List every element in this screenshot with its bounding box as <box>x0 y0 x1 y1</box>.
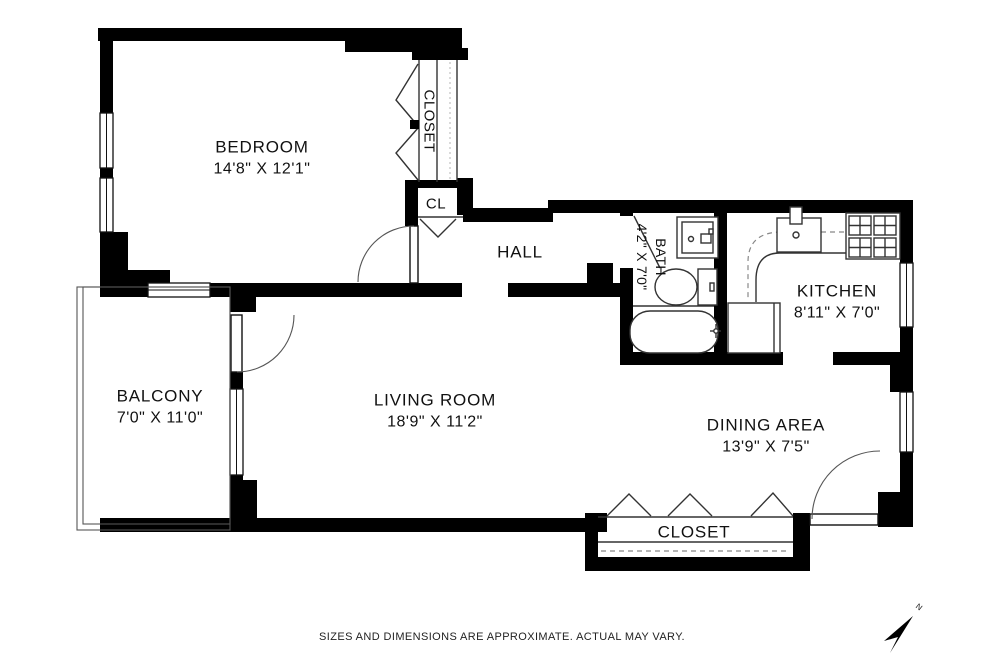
entry-door <box>810 451 880 525</box>
bifold-door <box>396 128 418 180</box>
wall <box>793 513 810 571</box>
footer-disclaimer: SIZES AND DIMENSIONS ARE APPROXIMATE. AC… <box>319 631 685 643</box>
bedroom-dims: 14'8" X 12'1" <box>214 161 311 178</box>
wall <box>620 352 783 365</box>
living-room-dims: 18'9" X 11'2" <box>387 414 483 431</box>
burner <box>874 238 896 257</box>
window <box>230 389 243 475</box>
kitchen-label: KITCHEN <box>797 282 877 301</box>
bathtub <box>630 311 721 353</box>
dining-area-dims: 13'9" X 7'5" <box>722 439 810 456</box>
wall <box>412 48 468 60</box>
bifold-door <box>420 219 456 237</box>
window <box>900 392 913 452</box>
balcony-railing <box>77 287 230 530</box>
stove <box>846 213 900 259</box>
burner <box>849 238 871 257</box>
wall <box>900 213 913 263</box>
bath-sink <box>677 217 718 258</box>
floorplan-page: BEDROOM 14'8" X 12'1" CLOSET CL HALL BAT… <box>0 0 1000 666</box>
window <box>100 178 113 232</box>
bifold-door <box>668 494 712 516</box>
wall <box>585 557 808 571</box>
living-room-label: LIVING ROOM <box>374 391 496 410</box>
hall-closet-label: CL <box>426 196 446 213</box>
wall <box>230 372 243 389</box>
wall <box>405 180 418 226</box>
doors <box>231 216 880 525</box>
bifold-door <box>396 64 418 126</box>
wall <box>230 295 256 312</box>
bedroom-closet-label: CLOSET <box>421 89 438 152</box>
burner <box>874 216 896 235</box>
north-label: N <box>914 602 924 613</box>
bifold-pivot <box>410 120 419 129</box>
window <box>900 263 913 327</box>
bath-dims: 4'2" X 7'0" <box>634 224 650 291</box>
bifold-door <box>751 493 793 516</box>
burner <box>849 216 871 235</box>
refrigerator <box>728 303 780 353</box>
dining-area-label: DINING AREA <box>707 416 825 435</box>
wall <box>878 492 913 527</box>
kitchen-fixtures <box>728 207 900 353</box>
bath-label: BATH <box>653 238 669 276</box>
walls <box>98 28 913 571</box>
bifold-door <box>607 494 651 516</box>
hall-closet <box>418 217 463 237</box>
floor-plan: BEDROOM 14'8" X 12'1" CLOSET CL HALL BAT… <box>0 0 1000 666</box>
wall <box>900 452 913 496</box>
balcony-door <box>231 315 294 372</box>
north-arrow: N <box>884 602 924 653</box>
window <box>100 113 113 168</box>
wall <box>230 480 257 523</box>
window <box>148 283 210 297</box>
wall <box>620 268 633 365</box>
wall <box>900 327 913 355</box>
wall <box>890 352 913 392</box>
kitchen-sink <box>777 207 821 252</box>
kitchen-dims: 8'11" X 7'0" <box>794 305 880 322</box>
wall <box>463 208 553 222</box>
bedroom-label: BEDROOM <box>215 138 308 157</box>
entry-closet-label: CLOSET <box>658 523 731 542</box>
wall <box>633 200 913 213</box>
wall <box>100 28 113 113</box>
bedroom-door <box>358 226 418 283</box>
balcony-dims: 7'0" X 11'0" <box>117 410 203 427</box>
north-arrow-icon <box>884 616 913 653</box>
wall <box>100 168 113 178</box>
wall <box>620 200 633 216</box>
balcony-label: BALCONY <box>117 387 204 406</box>
wall <box>587 263 613 293</box>
hall-label: HALL <box>497 243 543 262</box>
